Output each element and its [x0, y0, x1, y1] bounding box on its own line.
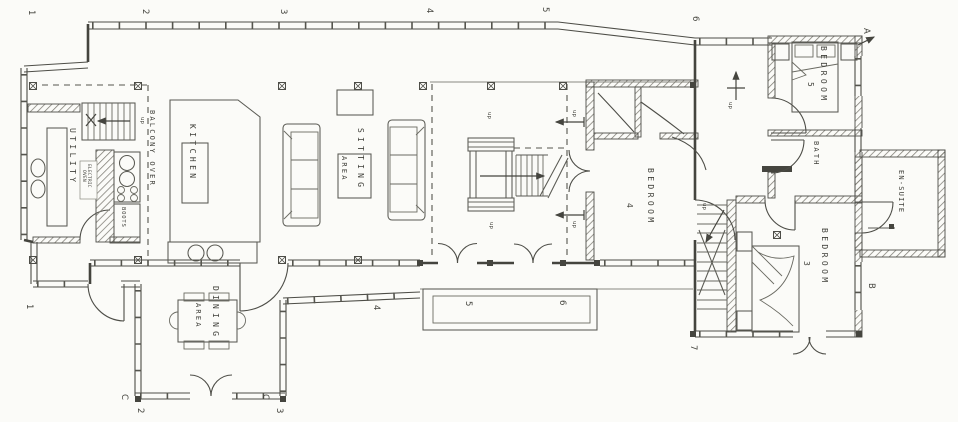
stair-utility [82, 103, 135, 140]
utility-sink-left [31, 159, 45, 177]
dining-table [178, 300, 237, 342]
grid-marker-C-right: C [260, 394, 270, 400]
up-label-stair-top: up [486, 112, 492, 119]
grid-marker-bottom-7: 7 [688, 345, 698, 350]
floor-plan-canvas: up up up up up up up UTILITY BALCONY OVE… [0, 0, 958, 422]
up-label-stair-bedroom3: up [701, 203, 707, 210]
bedroom3-furniture [737, 232, 799, 332]
stair-main [468, 138, 568, 211]
grid-marker-C-left: C [119, 394, 129, 400]
grid-marker-deck-5: 5 [463, 301, 473, 306]
grid-marker-deck-6: 6 [557, 300, 567, 305]
bed-bedroom5 [792, 42, 838, 112]
bedside-cabinet-bottom [737, 311, 752, 330]
room-number-bedroom4: 4 [625, 203, 634, 211]
scanned-floor-plan: up up up up up up up UTILITY BALCONY OVE… [0, 0, 958, 422]
fixture-label-oven: OVEN [81, 170, 87, 182]
kitchen-sink-bowl-right [207, 245, 223, 261]
up-labels: up up up up up up up [139, 102, 733, 229]
grid-marker-top-6: 6 [690, 16, 700, 21]
room-label-bedroom5: BEDROOM [819, 46, 828, 104]
room-label-dining-area: AREA [194, 303, 202, 329]
room-number-bedroom3: 3 [802, 261, 811, 269]
sofa-left [283, 124, 320, 226]
grid-marker-bottom-1: 1 [24, 304, 34, 309]
grid-markers: 1 2 3 4 5 6 A 1 2 C 3 C 4 5 6 7 B [24, 7, 876, 413]
room-label-bedroom4: BEDROOM [646, 168, 655, 226]
grid-marker-bottom-4: 4 [371, 305, 381, 310]
room-label-bedroom3: BEDROOM [820, 228, 829, 286]
utility-sink-right [31, 180, 45, 198]
room-number-bedroom5: 5 [806, 82, 815, 90]
sofa-right [388, 120, 425, 220]
grid-marker-top-1: 1 [26, 10, 36, 15]
room-label-sitting-area: AREA [340, 156, 348, 182]
room-label-bath: BATH [812, 141, 820, 167]
grid-marker-top-4: 4 [424, 8, 434, 13]
boots-cupboard [114, 204, 140, 242]
dining-furniture [170, 293, 246, 349]
room-label-sitting: SITTING [356, 128, 365, 191]
hob-unit [114, 152, 140, 202]
oven-housing [96, 150, 114, 242]
up-label-stair-bottom: up [488, 222, 494, 229]
bed-bedroom3 [752, 246, 799, 332]
room-label-balcony-over: BALCONY OVER [148, 110, 156, 187]
bedside-cabinet-top [737, 232, 752, 251]
grid-marker-bottom-2: 2 [135, 408, 145, 413]
up-label-step-south: up [571, 221, 577, 228]
room-label-kitchen: KITCHEN [188, 124, 197, 182]
grid-marker-B: B [866, 283, 876, 289]
grid-marker-top-3: 3 [278, 9, 288, 14]
kitchen-fixtures [168, 100, 260, 263]
console-table [337, 90, 373, 115]
balcony-dashed-lines [42, 84, 567, 263]
utility-counter [47, 128, 67, 226]
grid-marker-bottom-3: 3 [274, 408, 284, 413]
kitchen-counter [170, 100, 260, 242]
room-label-dining: DINING [211, 286, 220, 340]
stair-bedroom3 [697, 205, 727, 309]
bedroom5-furniture [772, 42, 857, 112]
up-label-corridor: up [727, 102, 733, 109]
deck [423, 289, 597, 330]
up-label-utility-stair: up [139, 117, 145, 124]
interior-walls [28, 36, 945, 332]
kitchen-sink-bowl-left [188, 245, 204, 261]
room-label-ensuite: EN-SUITE [897, 170, 905, 213]
grid-marker-top-2: 2 [140, 9, 150, 14]
grid-marker-top-5: 5 [540, 7, 550, 12]
fixture-label-boots: BOOTS [120, 207, 126, 228]
up-label-step-north: up [571, 110, 577, 117]
sitting-furniture [283, 90, 425, 226]
exterior-walls [21, 22, 863, 399]
grid-marker-A: A [861, 28, 871, 34]
room-label-utility: UTILITY [68, 128, 77, 186]
